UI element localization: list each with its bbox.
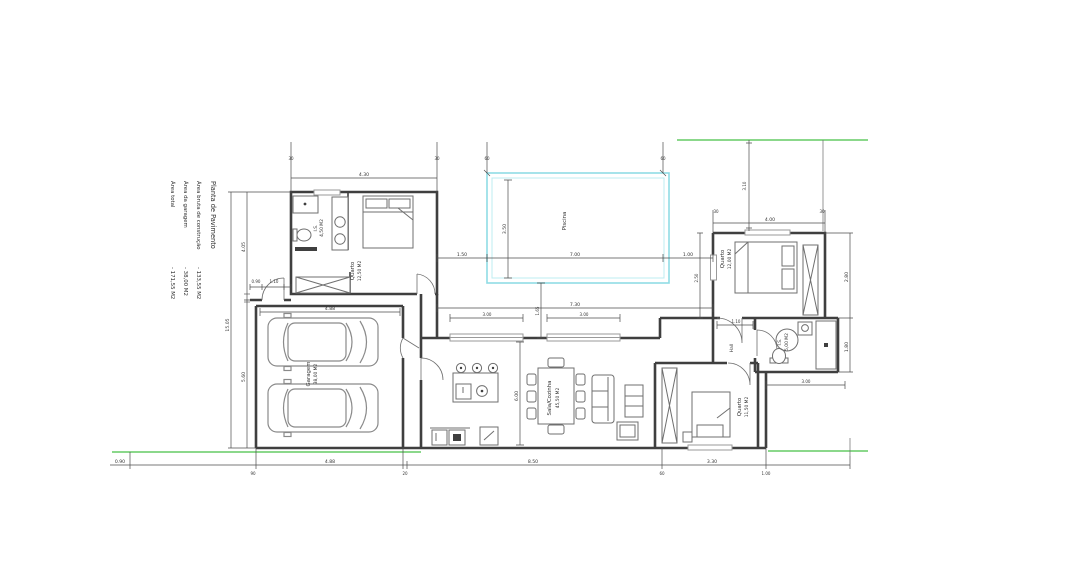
area-label-total: Área total: [169, 181, 176, 207]
car-2: [268, 380, 378, 437]
dim-win-1: 3.00: [483, 312, 492, 317]
suite-bath-label: I.S.: [313, 225, 319, 232]
area-value-garagem: - 38,00 M2: [182, 267, 188, 296]
pool: Piscina: [487, 173, 669, 283]
suite-bed: [363, 196, 413, 248]
suite-furniture: Quarto 12,50 M2 I.S. 4,50 M2: [293, 196, 413, 293]
dim-entry-b: 1.10: [270, 279, 279, 284]
dim-pool-gap-r: 1.00: [683, 252, 693, 258]
bedroom2-wardrobe: [803, 245, 818, 315]
bedroom2-window: [711, 255, 717, 280]
bedroom2-area: 12,00 M2: [727, 249, 733, 270]
bedroom3-window: [688, 445, 732, 450]
suite-bath-area: 4,50 M2: [319, 219, 325, 237]
area-label-garagem: Área da garagem: [182, 181, 189, 228]
dim-left-a: 4.05: [241, 242, 247, 252]
dim-pool-ext-r: 60: [660, 156, 666, 161]
corridor-walls: [421, 294, 437, 448]
garage-door: [400, 338, 419, 358]
garage-label: Garagem: [306, 362, 312, 387]
kitchen: Sala/Cozinha 45,50 M2: [430, 358, 643, 445]
dim-bottom-2: 4.88: [325, 459, 335, 465]
suite-area: 12,50 M2: [357, 261, 363, 282]
sofa: [592, 375, 614, 423]
kitchen-appliances: [430, 427, 498, 445]
bedroom3-label: Quarto: [737, 398, 743, 417]
bedroom3-area: 11,50 M2: [744, 397, 750, 418]
dim-right-a: 2.80: [844, 272, 850, 282]
garage: Garagem 38,00 M2: [268, 314, 378, 437]
suite-toilet: [293, 229, 311, 241]
corridor-living-door: [421, 358, 443, 380]
bedroom3: Quarto 11,50 M2: [662, 368, 750, 443]
dim-right-b: 1.80: [844, 342, 850, 352]
dim-terrace-span: 7.30: [570, 302, 580, 308]
dim-bed2-left: 2.50: [694, 273, 699, 282]
bedroom3-bed: [692, 392, 730, 437]
dim-pool-ext-l: 60: [484, 156, 490, 161]
dim-bottom-4: 3.30: [707, 459, 717, 465]
dim-pool-w: 7.00: [570, 252, 580, 258]
suite-vanity: [332, 197, 348, 250]
dim-left-b: 5.60: [241, 372, 247, 382]
bedroom3-door: [728, 363, 750, 385]
floor-plan-drawing: Planta de Pavimento Área bruta de constr…: [0, 0, 1080, 566]
dim-bottom-s1: 90: [250, 471, 256, 476]
living-glazing-2: [547, 334, 620, 341]
suite-wardrobe: [296, 277, 350, 293]
title-block: Planta de Pavimento Área bruta de constr…: [169, 181, 217, 299]
suite-door: [417, 274, 435, 294]
bedroom3-wardrobe: [662, 368, 677, 443]
dim-pool-gap-l: 1.50: [457, 252, 467, 258]
shelf-unit: [625, 385, 643, 417]
suite-window: [314, 190, 340, 195]
dim-pool-h: 3.50: [502, 224, 508, 234]
dim-left-total: 15.05: [225, 318, 231, 331]
dimension-lines: 15.05 4.05 5.60 4.30 30 30 60 60 3.10 1.…: [110, 140, 853, 476]
dim-bed2-top: 4.00: [765, 217, 775, 223]
bath2-storage: [816, 321, 836, 369]
side-table: [617, 422, 638, 440]
dim-hall-w: 1.10: [732, 319, 741, 324]
dim-bath-w: 3.00: [802, 379, 811, 384]
bedroom2-label: Quarto: [720, 250, 726, 269]
dim-suite-top-l: 30: [288, 156, 294, 161]
dim-setback: 3.10: [742, 181, 747, 190]
bedroom2-top-window: [745, 230, 790, 235]
bath2-label: I.S.: [777, 339, 783, 346]
bedroom3-nightstand: [683, 432, 692, 442]
car-1: [268, 314, 378, 371]
dim-living-h: 6.00: [514, 391, 520, 401]
dim-pool-house: 1.65: [535, 306, 540, 315]
pool-outer-edge: [487, 173, 669, 283]
dim-win-2: 3.00: [580, 312, 589, 317]
living-area: 45,50 M2: [555, 388, 561, 409]
dim-entry-a: 0.90: [252, 279, 261, 284]
dim-suite-top-r: 30: [434, 156, 440, 161]
dim-bed2-top-l: 30: [713, 209, 719, 214]
kitchen-island: [453, 363, 498, 402]
area-value-bruta: - 133,55 M2: [195, 267, 201, 299]
living-glazing-1: [450, 334, 523, 341]
bath2-sink: [798, 322, 812, 335]
dim-bed2-top-r: 30: [819, 209, 825, 214]
dim-bottom-s2: 20: [402, 471, 408, 476]
suite-label: Quarto: [350, 262, 356, 281]
bath2-area: 5,00 M2: [784, 333, 790, 351]
bedroom2-bed: [735, 242, 797, 293]
suite-bath-bench: [295, 247, 317, 251]
area-label-bruta: Área bruta de construção: [195, 181, 202, 250]
area-value-total: - 171,55 M2: [169, 267, 175, 299]
dim-bottom-3: 8.50: [528, 459, 538, 465]
garage-area: 38,00 M2: [313, 364, 319, 385]
suite-bath-counter-drain: [304, 203, 307, 206]
dim-bottom-0: 0.90: [115, 459, 125, 465]
dim-bottom-s3: 60: [659, 471, 665, 476]
dim-bottom-s4: 1.00: [762, 471, 771, 476]
pool-label: Piscina: [562, 212, 568, 231]
hall-label: Hall: [729, 344, 735, 352]
floor-plan-page: Planta de Pavimento Área bruta de constr…: [0, 0, 1080, 566]
dim-suite-top: 4.30: [359, 172, 369, 178]
living-label: Sala/Cozinha: [547, 381, 553, 416]
plan-title: Planta de Pavimento: [209, 181, 217, 249]
dim-garage-w: 4.88: [325, 306, 335, 312]
bathroom2: I.S. 5,00 M2 Hall: [729, 321, 836, 369]
bedroom2: Quarto 12,00 M2: [720, 242, 818, 315]
